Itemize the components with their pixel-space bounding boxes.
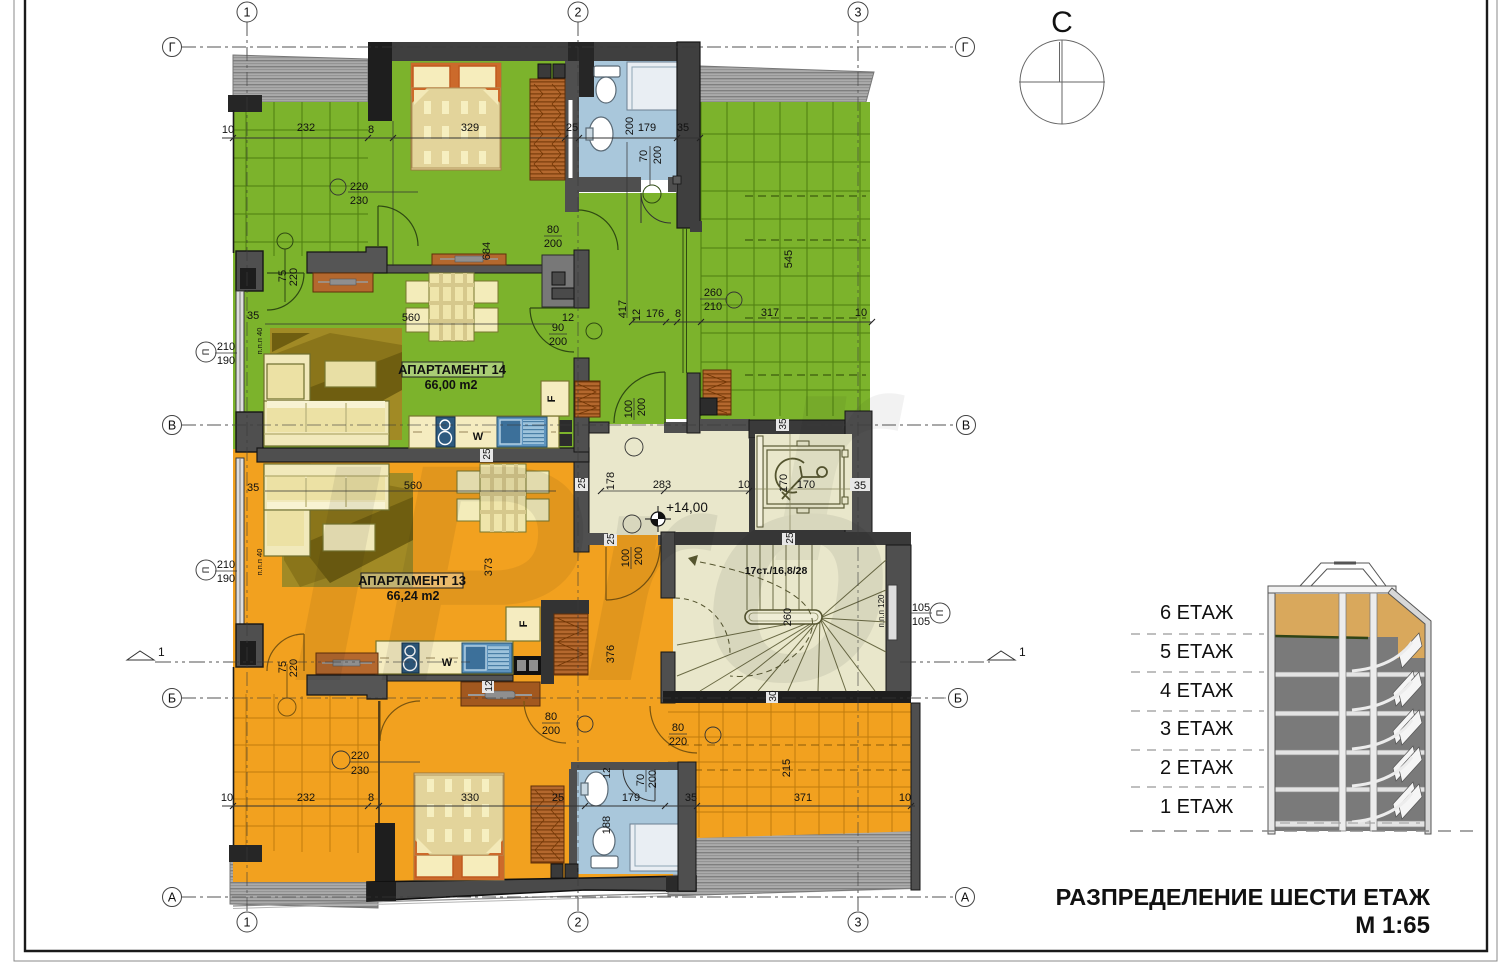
svg-text:200: 200 <box>542 725 560 737</box>
svg-text:3: 3 <box>855 6 862 20</box>
svg-text:232: 232 <box>297 122 315 134</box>
svg-text:п.п.п 40: п.п.п 40 <box>255 328 264 355</box>
svg-text:35: 35 <box>685 792 697 804</box>
svg-text:35: 35 <box>247 310 259 322</box>
svg-text:100: 100 <box>623 400 635 418</box>
svg-text:80: 80 <box>672 722 684 734</box>
svg-text:684: 684 <box>481 242 493 260</box>
svg-text:220: 220 <box>351 750 369 762</box>
svg-text:220: 220 <box>669 736 687 748</box>
svg-text:12: 12 <box>631 309 643 321</box>
svg-text:215: 215 <box>781 759 793 777</box>
svg-text:417: 417 <box>617 300 629 318</box>
svg-text:25: 25 <box>606 533 617 545</box>
svg-text:1: 1 <box>1019 645 1026 659</box>
svg-text:35: 35 <box>778 418 789 430</box>
svg-text:220: 220 <box>288 268 300 286</box>
svg-text:317: 317 <box>761 307 779 319</box>
svg-text:4 ЕТАЖ: 4 ЕТАЖ <box>1160 680 1234 702</box>
svg-text:260: 260 <box>704 287 722 299</box>
svg-text:170: 170 <box>797 479 815 491</box>
svg-text:70: 70 <box>638 150 650 162</box>
svg-text:1: 1 <box>244 6 251 20</box>
svg-text:200: 200 <box>544 238 562 250</box>
svg-text:П: П <box>935 610 945 616</box>
svg-text:373: 373 <box>483 558 495 576</box>
svg-text:6 ЕТАЖ: 6 ЕТАЖ <box>1160 602 1234 624</box>
svg-text:190: 190 <box>217 573 235 585</box>
svg-text:220: 220 <box>350 181 368 193</box>
svg-text:8: 8 <box>675 308 681 320</box>
svg-text:п.п.п 120: п.п.п 120 <box>877 594 886 628</box>
svg-text:200: 200 <box>636 398 648 416</box>
svg-text:1: 1 <box>244 916 251 930</box>
svg-text:329: 329 <box>461 122 479 134</box>
svg-text:8: 8 <box>368 124 374 136</box>
svg-text:+14,00: +14,00 <box>666 500 708 515</box>
svg-text:8: 8 <box>368 792 374 804</box>
svg-text:232: 232 <box>297 792 315 804</box>
svg-text:545: 545 <box>783 250 795 268</box>
svg-text:Г: Г <box>962 41 969 55</box>
svg-text:25: 25 <box>566 122 578 134</box>
svg-text:30: 30 <box>768 690 779 702</box>
svg-text:12: 12 <box>562 312 574 324</box>
svg-text:Б: Б <box>954 692 962 706</box>
svg-text:66,00 m2: 66,00 m2 <box>425 378 478 392</box>
svg-text:80: 80 <box>547 224 559 236</box>
svg-text:100: 100 <box>620 549 632 567</box>
svg-text:А: А <box>168 891 177 905</box>
svg-text:200: 200 <box>652 146 664 164</box>
svg-text:260: 260 <box>782 608 794 626</box>
svg-text:80: 80 <box>545 711 557 723</box>
svg-text:П: П <box>201 567 211 573</box>
svg-text:1 ЕТАЖ: 1 ЕТАЖ <box>1160 796 1234 818</box>
svg-text:220: 220 <box>288 659 300 677</box>
svg-text:3: 3 <box>855 916 862 930</box>
svg-text:Б: Б <box>168 692 176 706</box>
svg-text:10: 10 <box>855 307 867 319</box>
svg-text:10: 10 <box>221 792 233 804</box>
svg-text:200: 200 <box>624 117 636 135</box>
svg-text:200: 200 <box>549 336 567 348</box>
svg-text:176: 176 <box>646 308 664 320</box>
svg-text:179: 179 <box>638 122 656 134</box>
svg-text:25: 25 <box>552 792 564 804</box>
svg-text:В: В <box>168 419 176 433</box>
svg-text:190: 190 <box>217 355 235 367</box>
svg-text:РАЗПРЕДЕЛЕНИЕ ШЕСТИ ЕТАЖ: РАЗПРЕДЕЛЕНИЕ ШЕСТИ ЕТАЖ <box>1056 884 1431 910</box>
svg-text:В: В <box>962 419 970 433</box>
svg-text:283: 283 <box>653 479 671 491</box>
svg-text:188: 188 <box>601 816 613 834</box>
svg-text:1: 1 <box>158 645 165 659</box>
svg-text:10: 10 <box>738 479 750 491</box>
svg-text:170: 170 <box>778 474 790 492</box>
svg-text:178: 178 <box>605 472 617 490</box>
svg-text:230: 230 <box>350 195 368 207</box>
svg-text:Г: Г <box>169 41 176 55</box>
svg-text:W: W <box>473 431 484 443</box>
svg-text:35: 35 <box>677 122 689 134</box>
svg-text:330: 330 <box>461 792 479 804</box>
svg-text:3 ЕТАЖ: 3 ЕТАЖ <box>1160 718 1234 740</box>
svg-text:2: 2 <box>575 916 582 930</box>
svg-text:17ст./16,8/28: 17ст./16,8/28 <box>745 565 808 577</box>
svg-text:210: 210 <box>217 341 235 353</box>
svg-text:25: 25 <box>577 477 588 489</box>
svg-text:10: 10 <box>899 792 911 804</box>
svg-text:10: 10 <box>222 124 234 136</box>
svg-text:200: 200 <box>647 770 659 788</box>
svg-text:25: 25 <box>482 448 493 460</box>
svg-text:371: 371 <box>794 792 812 804</box>
svg-text:С: С <box>1051 6 1073 39</box>
svg-text:п.п.п 40: п.п.п 40 <box>255 549 264 576</box>
svg-text:А: А <box>961 891 970 905</box>
svg-text:5 ЕТАЖ: 5 ЕТАЖ <box>1160 641 1234 663</box>
svg-text:230: 230 <box>351 765 369 777</box>
svg-text:2: 2 <box>575 6 582 20</box>
svg-text:105: 105 <box>912 616 930 628</box>
svg-text:35: 35 <box>247 482 259 494</box>
svg-text:М 1:65: М 1:65 <box>1355 912 1430 939</box>
svg-text:179: 179 <box>622 792 640 804</box>
svg-text:12: 12 <box>602 767 613 779</box>
svg-text:70: 70 <box>635 774 647 786</box>
svg-text:105: 105 <box>912 602 930 614</box>
svg-text:210: 210 <box>217 559 235 571</box>
svg-text:560: 560 <box>404 480 422 492</box>
svg-text:АПАРТАМЕНТ 13: АПАРТАМЕНТ 13 <box>358 573 466 588</box>
svg-text:200: 200 <box>633 547 645 565</box>
svg-text:35: 35 <box>854 480 866 492</box>
svg-text:12: 12 <box>484 680 495 692</box>
svg-text:25: 25 <box>785 532 796 544</box>
svg-text:66,24 m2: 66,24 m2 <box>387 589 440 603</box>
svg-text:П: П <box>201 349 211 355</box>
svg-text:560: 560 <box>402 312 420 324</box>
svg-text:376: 376 <box>605 645 617 663</box>
svg-text:2 ЕТАЖ: 2 ЕТАЖ <box>1160 757 1234 779</box>
svg-text:АПАРТАМЕНТ 14: АПАРТАМЕНТ 14 <box>398 362 507 377</box>
svg-text:W: W <box>442 657 453 669</box>
svg-text:210: 210 <box>704 301 722 313</box>
